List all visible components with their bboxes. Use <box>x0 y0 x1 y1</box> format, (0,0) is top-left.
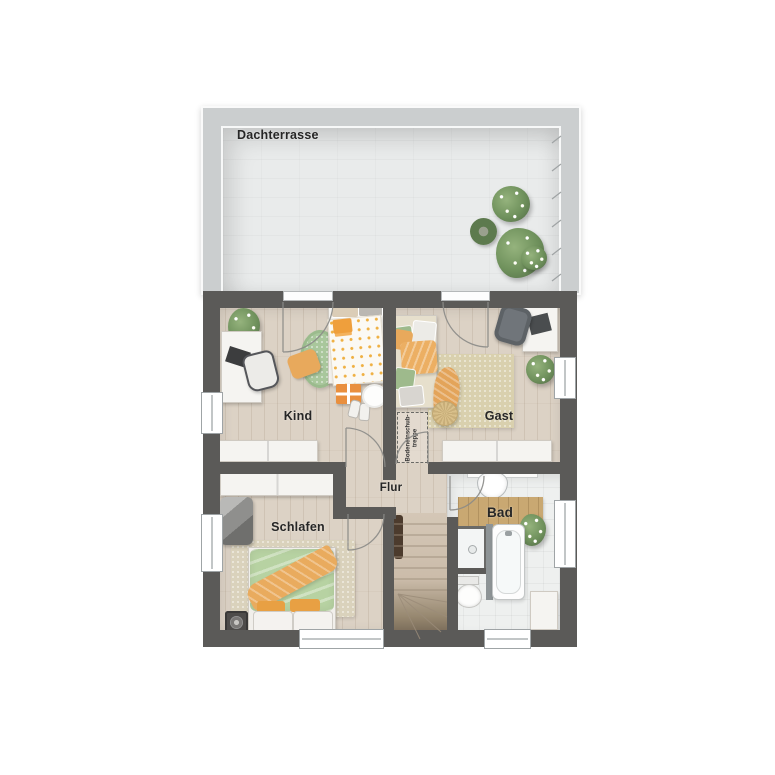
door-arc-kind-terrace <box>283 302 333 352</box>
bad-label: Bad <box>470 505 530 520</box>
door-arc-gast-hall <box>396 432 428 464</box>
flur-label: Flur <box>361 482 421 494</box>
door-arc-gast-terrace <box>443 302 488 347</box>
kind-label: Kind <box>268 409 328 423</box>
stair-treads <box>394 524 447 639</box>
door-arc-schlafen <box>348 514 384 550</box>
schlafen-label: Schlafen <box>263 520 333 534</box>
parapet-hatch-ticks <box>552 136 561 281</box>
plan-linework <box>0 0 775 775</box>
door-arc-kind-hall <box>346 428 385 467</box>
gast-label: Gast <box>469 409 529 423</box>
floor-plan: Dachterrasse <box>0 0 775 775</box>
